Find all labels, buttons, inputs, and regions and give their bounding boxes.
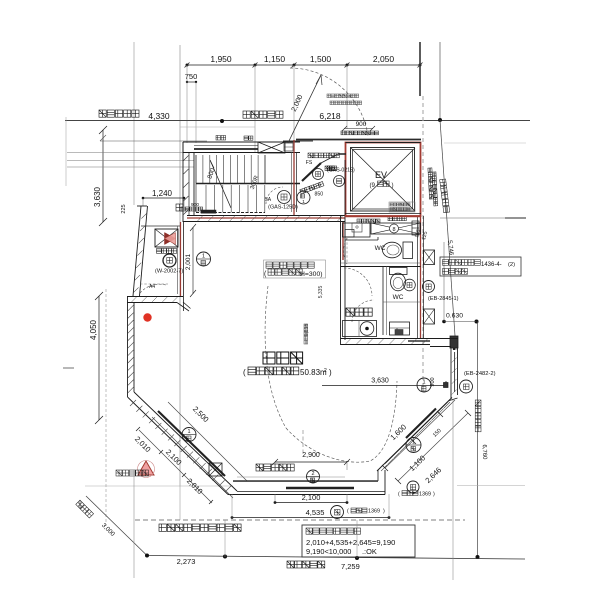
svg-text:EV: EV bbox=[375, 170, 387, 180]
svg-text:2: 2 bbox=[324, 368, 327, 374]
svg-text:(EB-2845-1): (EB-2845-1) bbox=[428, 296, 459, 302]
svg-text:0.630: 0.630 bbox=[446, 313, 463, 320]
svg-text:850: 850 bbox=[315, 192, 324, 198]
svg-text:2,900: 2,900 bbox=[302, 452, 320, 459]
svg-text:2,001: 2,001 bbox=[185, 253, 192, 270]
svg-text:750: 750 bbox=[185, 72, 198, 81]
svg-text:WC: WC bbox=[375, 245, 386, 252]
svg-text:.:OK: .:OK bbox=[362, 547, 377, 556]
svg-text:): ) bbox=[329, 368, 332, 377]
svg-text:(EB-2482-2): (EB-2482-2) bbox=[464, 371, 496, 377]
svg-text:4,535: 4,535 bbox=[306, 508, 325, 517]
svg-text:5,335: 5,335 bbox=[318, 286, 324, 299]
svg-text:1369: 1369 bbox=[368, 509, 380, 515]
svg-text:1369: 1369 bbox=[419, 492, 431, 498]
svg-text:1: 1 bbox=[422, 380, 425, 386]
svg-text:): ) bbox=[392, 182, 394, 189]
svg-text:1,950: 1,950 bbox=[210, 54, 232, 64]
svg-text:50.83m: 50.83m bbox=[300, 368, 327, 377]
svg-text:1: 1 bbox=[412, 440, 415, 446]
svg-text:): ) bbox=[383, 509, 385, 515]
svg-text:6,218: 6,218 bbox=[319, 111, 341, 121]
svg-text:1,240: 1,240 bbox=[152, 189, 173, 198]
svg-text:): ) bbox=[433, 492, 435, 498]
svg-text:H=300): H=300) bbox=[300, 271, 322, 278]
svg-text:9,190<10,000: 9,190<10,000 bbox=[306, 547, 351, 556]
svg-text:3,630: 3,630 bbox=[93, 186, 102, 207]
svg-text:(: ( bbox=[347, 509, 349, 515]
svg-text:(W-2002-7): (W-2002-7) bbox=[155, 269, 183, 275]
svg-text:1,500: 1,500 bbox=[310, 54, 332, 64]
svg-text:7,259: 7,259 bbox=[341, 562, 360, 571]
svg-text:(9: (9 bbox=[370, 182, 376, 189]
svg-text:4,050: 4,050 bbox=[89, 319, 98, 340]
svg-text:2,273: 2,273 bbox=[177, 557, 196, 566]
svg-text:A4: A4 bbox=[149, 284, 155, 290]
svg-text:1436-4-: 1436-4- bbox=[481, 262, 502, 268]
svg-text:WC: WC bbox=[393, 294, 404, 301]
svg-text:2,100: 2,100 bbox=[302, 493, 321, 502]
svg-text:1: 1 bbox=[187, 429, 190, 435]
svg-text:6,760: 6,760 bbox=[481, 444, 488, 460]
svg-text:225: 225 bbox=[121, 204, 127, 213]
svg-text:2: 2 bbox=[311, 471, 314, 477]
svg-text:2,010+4,535+2,645=9,190: 2,010+4,535+2,645=9,190 bbox=[306, 538, 395, 547]
svg-text:1,150: 1,150 bbox=[264, 54, 286, 64]
svg-text:2,050: 2,050 bbox=[373, 54, 395, 64]
svg-text:1: 1 bbox=[202, 254, 205, 260]
svg-text:(2): (2) bbox=[508, 262, 515, 268]
svg-text:5A: 5A bbox=[265, 197, 272, 203]
svg-text:(: ( bbox=[243, 368, 246, 377]
svg-text:900: 900 bbox=[430, 377, 436, 386]
svg-text:9,615: 9,615 bbox=[304, 324, 310, 337]
svg-text:4,330: 4,330 bbox=[148, 111, 170, 121]
svg-text:900: 900 bbox=[191, 202, 199, 208]
svg-text:(GAS-125D): (GAS-125D) bbox=[268, 205, 298, 211]
svg-text:900: 900 bbox=[356, 121, 367, 128]
svg-text:8: 8 bbox=[392, 227, 395, 233]
svg-text:FS: FS bbox=[306, 160, 313, 166]
svg-text:3,630: 3,630 bbox=[371, 378, 389, 385]
svg-text:(: ( bbox=[398, 492, 400, 498]
